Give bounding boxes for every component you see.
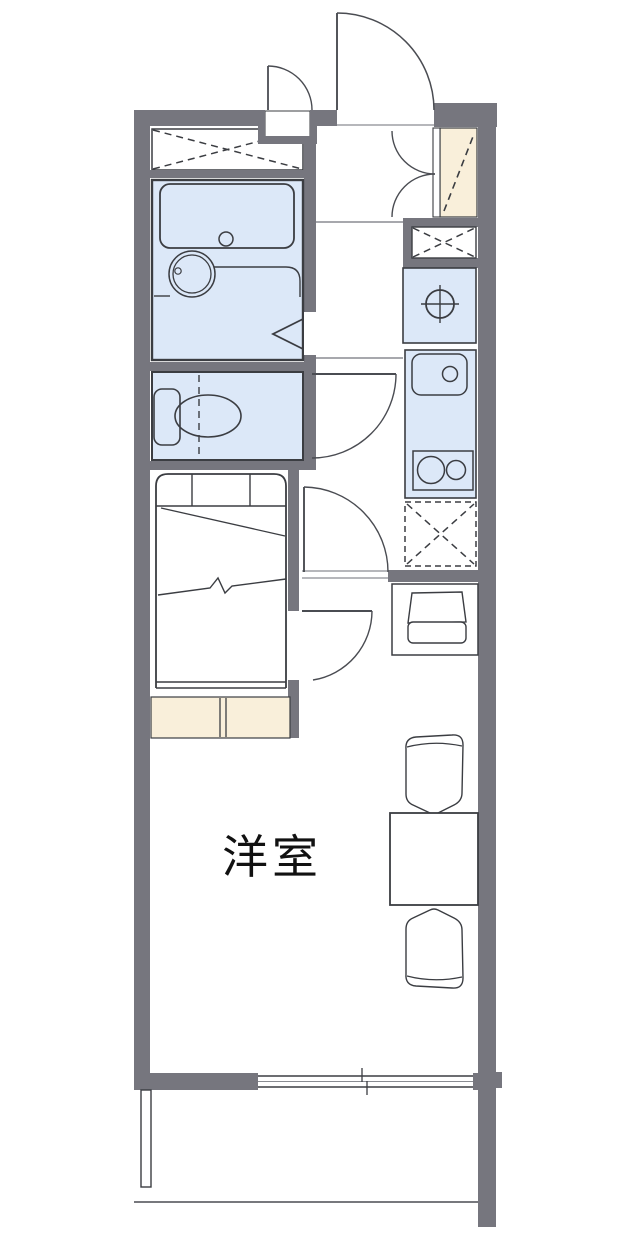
washing-machine-space — [403, 268, 476, 343]
desk-chair — [408, 592, 466, 643]
entrance-door — [337, 13, 434, 110]
bath-door-gap — [304, 312, 316, 355]
room-label: 洋室 — [222, 831, 322, 883]
dining-table — [390, 813, 478, 905]
balcony — [134, 1090, 478, 1202]
desk — [392, 584, 478, 655]
refrigerator-space — [405, 502, 476, 566]
floorplan-canvas: 洋室 — [0, 0, 640, 1243]
kitchen-counter — [405, 350, 476, 498]
floorplan-image: 洋室 — [0, 0, 640, 1243]
main-room-door — [302, 487, 388, 578]
shoe-cabinet — [433, 128, 477, 217]
laundry-closet — [412, 227, 476, 258]
toilet-room — [152, 372, 303, 460]
sliding-window — [258, 1068, 473, 1095]
under-bed-storage — [151, 697, 290, 738]
dining-chair-bottom — [406, 909, 463, 988]
entry-closet-double-doors — [392, 131, 435, 217]
bed — [156, 474, 286, 688]
bed-room-door — [302, 611, 372, 680]
unit-bath — [152, 180, 303, 360]
meter-box-door — [268, 66, 312, 110]
meter-box — [265, 111, 310, 137]
dining-chair-top — [406, 735, 463, 814]
toilet-door — [312, 374, 396, 458]
